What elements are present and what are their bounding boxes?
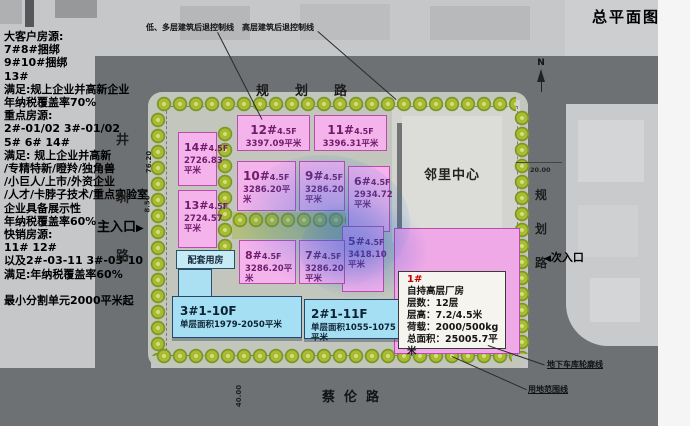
building-area: 2726.83平米 xyxy=(184,156,214,176)
building-label: 2#1-11F xyxy=(311,303,401,322)
building-3: 3#1-10F 单层面积1979-2050平米 xyxy=(172,296,302,338)
building-5: 5#4.5F 3418.10平米 xyxy=(342,226,384,292)
north-compass: N xyxy=(531,58,551,100)
building-label: 13#4.5F xyxy=(184,194,214,213)
building-area: 3286.20平米 xyxy=(305,264,342,284)
building-number: 11# xyxy=(327,123,354,137)
building-floors: 4.5F xyxy=(371,178,391,187)
aerial-texture xyxy=(0,0,22,24)
tree-band-left xyxy=(150,112,166,356)
main-entrance-arrow-icon: ▶ xyxy=(136,223,144,234)
building-10: 10#4.5F 3286.20平米 xyxy=(237,161,296,211)
building-label: 3#1-10F xyxy=(180,300,299,319)
building-1-id: 1# xyxy=(407,274,505,286)
neighborhood-center: 邻里中心 xyxy=(402,116,502,230)
main-entrance-label: 主入口▶ xyxy=(97,216,144,235)
aerial-texture xyxy=(578,120,644,182)
building-floors: 4.5F xyxy=(323,173,343,182)
north-label: N xyxy=(531,58,551,68)
secondary-entrance-text: 次入口 xyxy=(551,251,584,264)
setback-multi-label: 低、多层建筑后退控制线 xyxy=(146,22,234,33)
building-area: 3396.31平米 xyxy=(323,139,379,149)
building-label: 11#4.5F xyxy=(327,119,373,138)
building-label: 14#4.5F xyxy=(184,136,214,155)
building-9: 9#4.5F 3286.20平米 xyxy=(299,161,345,211)
dim-site-depth: 76.20 xyxy=(145,151,153,173)
building-11: 11#4.5F 3396.31平米 xyxy=(314,115,387,151)
building-2: 2#1-11F 单层面积1055-1075平米 xyxy=(304,299,404,339)
north-arrow-shaft xyxy=(541,82,542,92)
dim-tick xyxy=(516,162,562,163)
building-number: 7# xyxy=(305,249,322,262)
aerial-texture xyxy=(25,0,34,27)
dim-gate-width: 8.50 xyxy=(144,195,152,212)
building-label: 6#4.5F xyxy=(354,170,387,189)
building-floors: 4.5F xyxy=(354,127,374,136)
site-plan: 邻里中心 12#4.5F 3397.09平米 11#4.5F 3396.31平米… xyxy=(0,0,690,426)
secondary-entrance-label: ◀次入口 xyxy=(544,249,584,265)
building-area: 3286.20平米 xyxy=(305,185,342,205)
building-floors: 4.5F xyxy=(209,144,229,153)
building-floors: 1-10F xyxy=(198,304,236,318)
building-area: 3286.20平米 xyxy=(245,264,293,284)
building-label: 12#4.5F xyxy=(250,119,296,138)
building-label: 9#4.5F xyxy=(305,165,342,184)
site-boundary-label: 用地范围线 xyxy=(528,384,568,395)
aerial-texture xyxy=(430,6,530,40)
aerial-texture xyxy=(590,278,640,322)
building-area: 2724.57平米 xyxy=(184,214,214,234)
building-number: 8# xyxy=(245,249,262,262)
building-number: 2# xyxy=(311,307,329,321)
courtyard-green xyxy=(232,212,346,239)
building-area: 单层面积1979-2050平米 xyxy=(180,320,299,330)
road-label-top: 规划路 xyxy=(256,80,373,99)
building-8: 8#4.5F 3286.20平米 xyxy=(239,240,296,284)
building-label: 5#4.5F xyxy=(348,230,381,249)
secondary-entrance-arrow-icon: ◀ xyxy=(544,254,551,264)
dim-road-width: 20.00 xyxy=(530,166,551,174)
building-label: 8#4.5F xyxy=(245,244,293,263)
building-12: 12#4.5F 3397.09平米 xyxy=(237,115,310,151)
building-7: 7#4.5F 3286.20平米 xyxy=(299,240,345,284)
garage-outline-label: 地下车库轮廓线 xyxy=(547,359,603,370)
building-number: 9# xyxy=(305,169,323,183)
aerial-texture xyxy=(55,0,97,18)
building-number: 12# xyxy=(250,123,277,137)
building-1-callout: 1# 自持高层厂房 层数：12层 层高：7.2/4.5米 荷载：2000/500… xyxy=(398,271,506,349)
road-label-left: 井 圳 路 xyxy=(116,112,129,286)
road-label-bottom: 蔡伦路 xyxy=(322,386,388,405)
building-14: 14#4.5F 2726.83平米 xyxy=(178,132,217,186)
building-number: 13# xyxy=(184,199,209,212)
support-building-label: 配套用房 xyxy=(176,250,235,269)
building-number: 6# xyxy=(354,175,371,188)
building-floors: 4.5F xyxy=(365,238,385,247)
building-floors: 4.5F xyxy=(209,202,229,211)
building-floors: 4.5F xyxy=(277,127,297,136)
aerial-texture xyxy=(578,205,638,257)
paper-margin xyxy=(658,0,690,426)
building-number: 14# xyxy=(184,141,209,154)
north-arrow-icon xyxy=(537,69,545,82)
building-area: 2934.72平米 xyxy=(354,190,387,210)
building-13: 13#4.5F 2724.57平米 xyxy=(178,190,217,248)
support-building-text: 配套用房 xyxy=(187,253,223,266)
building-floors: 4.5F xyxy=(322,252,342,261)
building-6: 6#4.5F 2934.72平米 xyxy=(348,166,390,232)
building-area: 3418.10平米 xyxy=(348,250,381,270)
building-area: 单层面积1055-1075平米 xyxy=(311,323,401,343)
building-number: 3# xyxy=(180,304,198,318)
building-label: 10#4.5F xyxy=(243,165,293,184)
dim-bottom-width: 40.00 xyxy=(235,385,243,407)
building-floors: 4.5F xyxy=(270,173,290,182)
neighborhood-center-label: 邻里中心 xyxy=(424,164,480,183)
building-floors: 1-11F xyxy=(329,307,367,321)
main-entrance-text: 主入口 xyxy=(97,220,136,235)
building-area: 3397.09平米 xyxy=(246,139,302,149)
building-floors: 4.5F xyxy=(262,252,282,261)
page-title: 总平面图 xyxy=(592,6,660,27)
building-label: 7#4.5F xyxy=(305,244,342,263)
building-number: 5# xyxy=(348,235,365,248)
building-number: 10# xyxy=(243,169,270,183)
building-area: 3286.20平米 xyxy=(243,185,293,205)
setback-high-label: 高层建筑后退控制线 xyxy=(242,22,314,33)
